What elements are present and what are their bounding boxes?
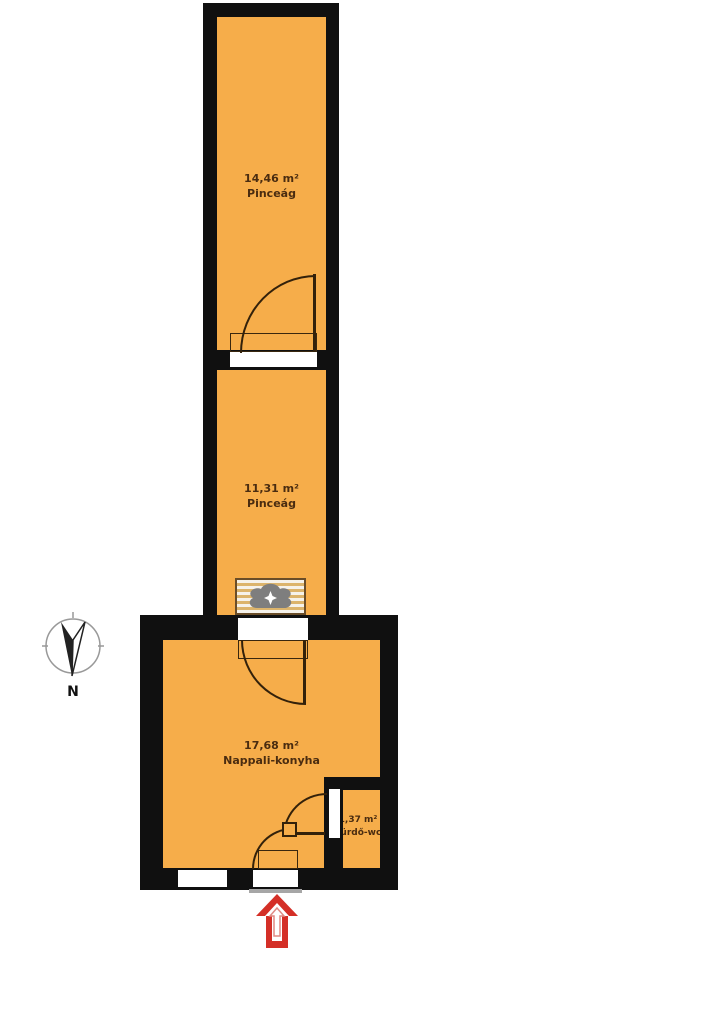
wall-right-patch (380, 775, 398, 875)
room-label-cellar-top: 14,46 m² Pinceág (217, 171, 326, 201)
room-label-cellar-bottom: 11,31 m² Pinceág (217, 481, 326, 511)
entrance-threshold (249, 889, 302, 893)
room-area: 17,68 m² (163, 738, 380, 753)
door-opening-cellar (230, 351, 317, 367)
door-stop-block (282, 822, 297, 837)
room-area: 14,46 m² (217, 171, 326, 186)
stove-icon (235, 578, 306, 615)
door-opening-bathroom (329, 789, 340, 838)
door-opening-living (238, 618, 308, 640)
entrance-door-opening (253, 870, 298, 887)
compass-north-label: N (67, 684, 79, 700)
room-label-living: 17,68 m² Nappali-konyha (163, 738, 380, 768)
stove-glyph (237, 580, 304, 613)
room-name: Pinceág (217, 186, 326, 201)
room-name: Nappali-konyha (163, 753, 380, 768)
window-opening (178, 870, 227, 887)
compass-icon: N (42, 606, 104, 701)
floor-plan: 14,46 m² Pinceág 11,31 m² Pinceág 17,68 … (0, 0, 716, 1024)
room-name: Pinceág (217, 496, 326, 511)
room-area: 11,31 m² (217, 481, 326, 496)
entrance-arrow-icon (256, 894, 298, 948)
